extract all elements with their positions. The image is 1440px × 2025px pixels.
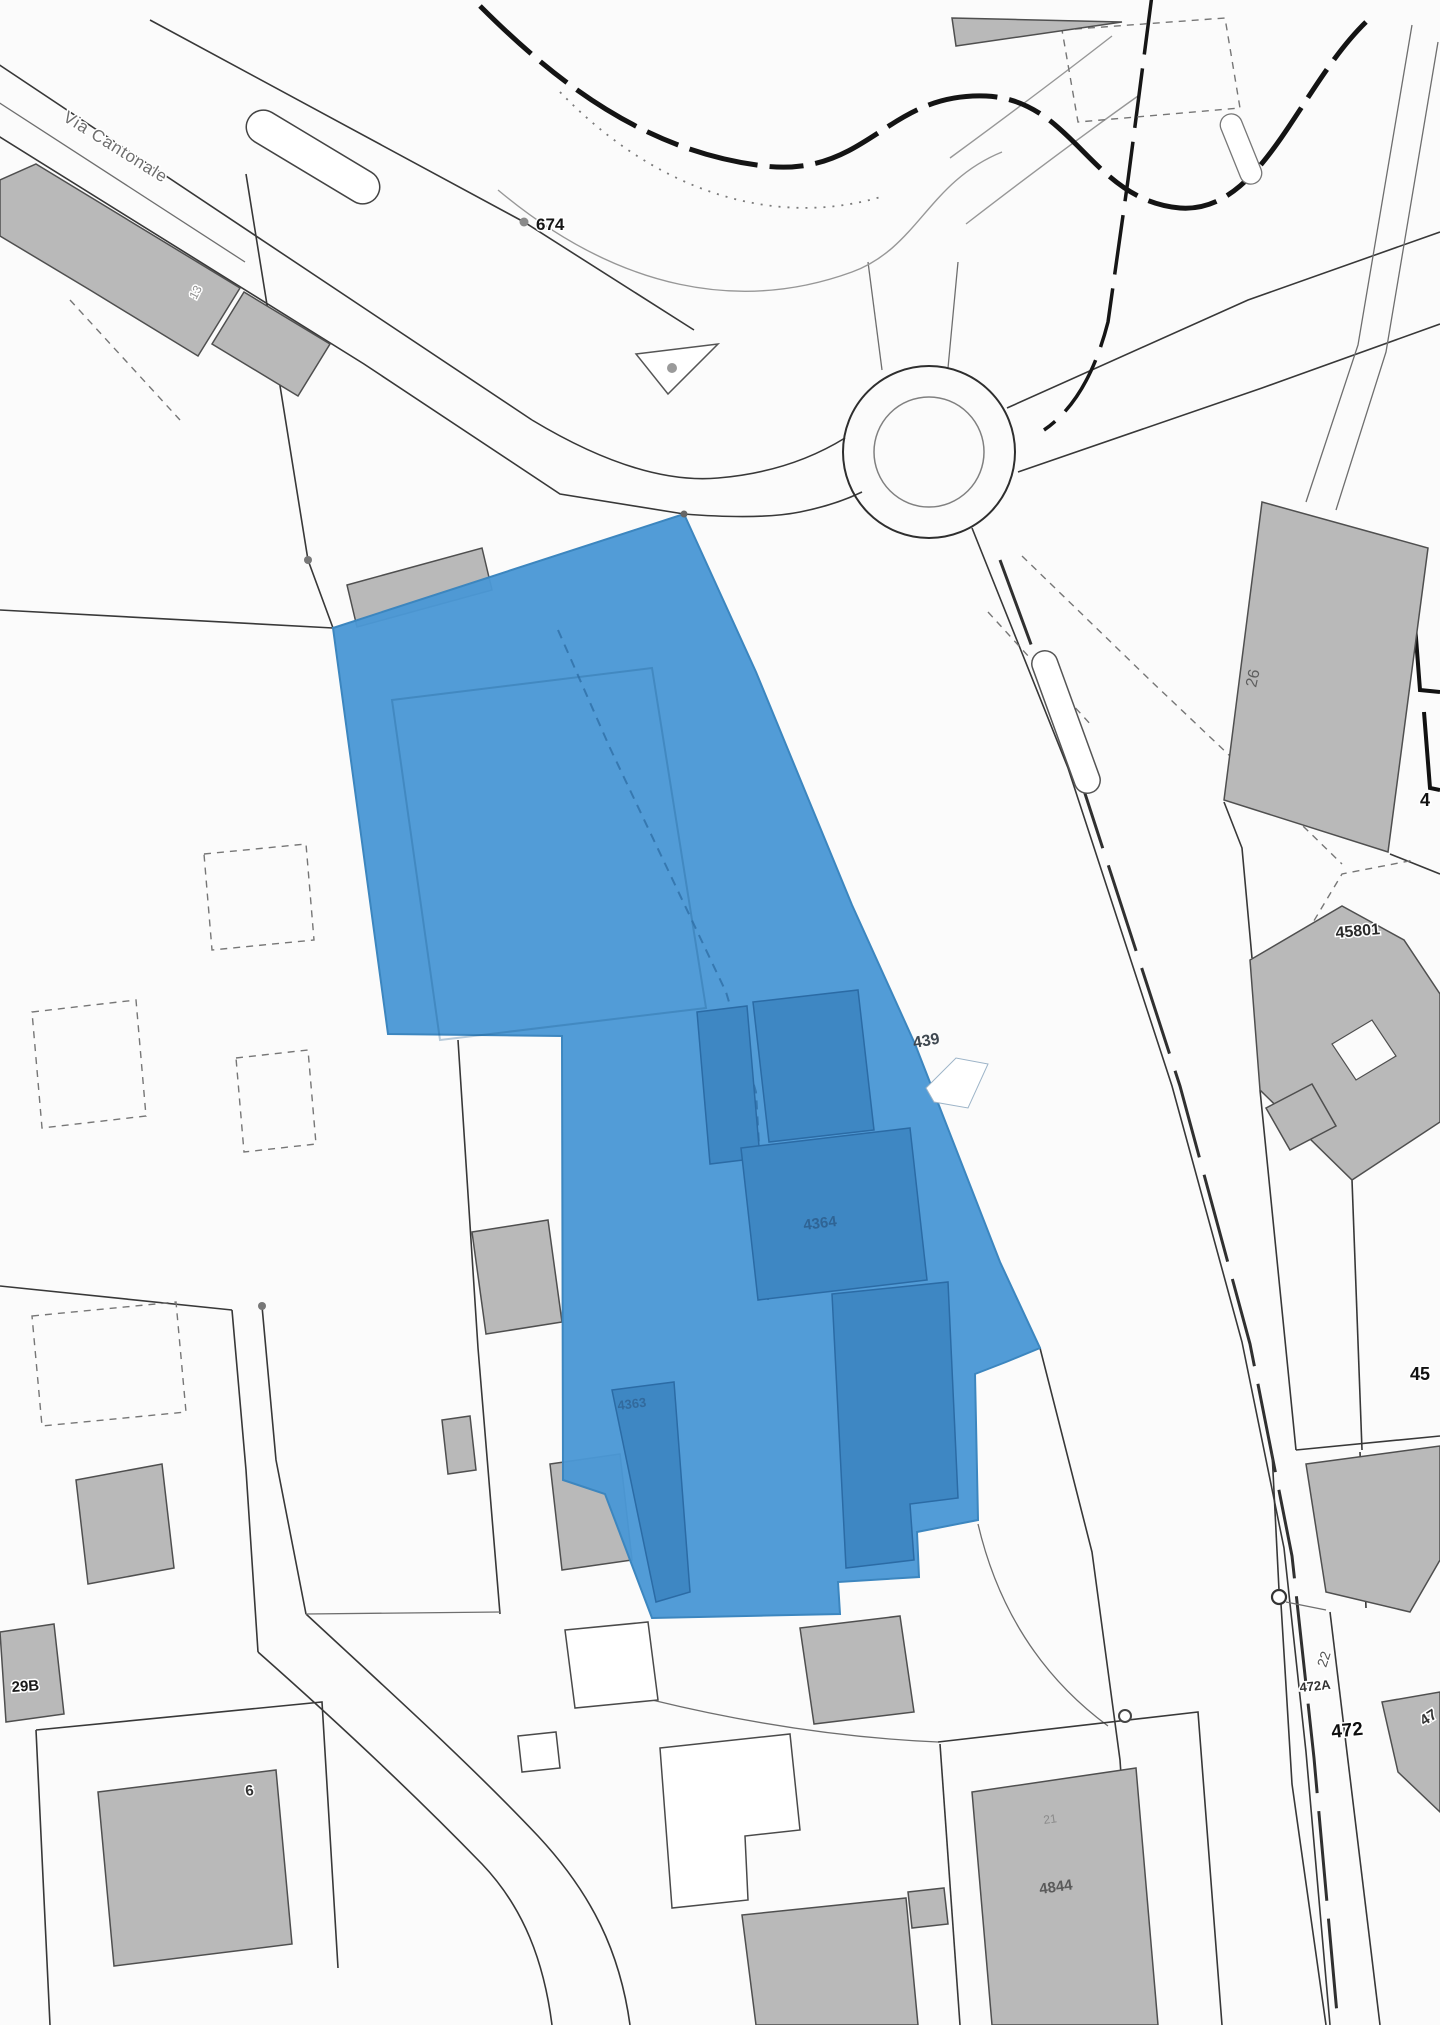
bold-corner-marks <box>1414 612 1440 790</box>
building-white-1 <box>565 1622 658 1708</box>
building-4844 <box>972 1768 1158 2025</box>
parcel-line-b4 <box>306 1612 500 1614</box>
roundabout-inner <box>874 397 984 507</box>
parcel-line-r3 <box>1224 802 1252 958</box>
parcel-line-r1 <box>1306 25 1412 502</box>
fork-island <box>636 344 718 394</box>
edge-label-4: 4 <box>1420 790 1430 810</box>
top-gray-curve <box>498 152 1002 291</box>
dashed-parcel-tr <box>1062 18 1240 122</box>
bold-boundary-north <box>1044 0 1152 430</box>
building-white-3 <box>518 1732 560 1772</box>
parcel-line-r12 <box>1286 1602 1326 1610</box>
building-bottom-right-1 <box>1306 1446 1440 1612</box>
inner-building-2 <box>753 990 874 1142</box>
parcel-line-r4 <box>1390 854 1440 874</box>
parcel-line-r10 <box>1330 1612 1380 2025</box>
house-label-21: 21 <box>1042 1811 1057 1827</box>
boundary-dot-1 <box>304 556 312 564</box>
building-left-lower <box>76 1464 174 1584</box>
cadastral-map: Via Cantonale 674 13 439 4364 4363 26 45… <box>0 0 1440 2025</box>
building-small-sq <box>908 1888 948 1928</box>
house-label-26: 26 <box>1243 668 1263 689</box>
parcel-line-l3 <box>0 1286 232 1310</box>
island-dot <box>667 363 677 373</box>
point-label-674: 674 <box>536 215 565 234</box>
parcel-line-l1 <box>0 610 333 628</box>
entrance-island-wedge <box>926 1058 988 1108</box>
boundary-dot-2 <box>258 1302 266 1310</box>
building-top-left-1 <box>0 164 240 356</box>
boundary-point-674 <box>520 218 529 227</box>
dashed-parcel-d <box>32 1302 186 1426</box>
parcel-label-472: 472 <box>1330 1719 1364 1743</box>
ne-road-edge-1 <box>1007 232 1440 408</box>
dashed-parcel-b <box>32 1000 146 1128</box>
dashed-parcel-a <box>204 844 314 950</box>
building-strip-3 <box>442 1416 476 1474</box>
road-to-roundabout-s-edge <box>684 492 862 517</box>
roundabout-outer <box>843 366 1015 538</box>
parcel-line-r6 <box>1352 1180 1362 1450</box>
ne-road-edge-2 <box>1018 324 1440 472</box>
ne-curve-2 <box>966 96 1138 224</box>
building-strip-1 <box>472 1220 562 1334</box>
highlight-parcel-group <box>333 514 1040 1618</box>
street-curve-2 <box>258 1652 552 2025</box>
building-top-sliver <box>952 18 1122 46</box>
building-bottom-center <box>742 1898 918 2025</box>
edge-label-45: 45 <box>1410 1364 1430 1384</box>
house-label-22: 22 <box>1314 1649 1334 1669</box>
building-white-2 <box>660 1734 800 1908</box>
parcel-line-r7 <box>1296 1436 1440 1450</box>
boundary-dot-apex <box>681 511 688 518</box>
street-label-via-cantonale: Via Cantonale <box>60 107 171 186</box>
road-to-roundabout-n-edge <box>532 420 845 479</box>
parcel-line-l2 <box>246 174 333 628</box>
map-canvas: Via Cantonale 674 13 439 4364 4363 26 45… <box>0 0 1440 2025</box>
n-exit-edge-2 <box>948 262 958 368</box>
parcel-label-472a: 472A <box>1299 1677 1332 1695</box>
n-exit-edge-1 <box>868 262 882 370</box>
serpentine-bold-boundary <box>480 6 1366 208</box>
median-island-3 <box>1217 111 1265 188</box>
median-island-1 <box>240 104 386 210</box>
street-edge-l1 <box>262 1306 306 1614</box>
median-island-2 <box>1028 647 1104 797</box>
survey-ring-1 <box>1272 1590 1286 1604</box>
parcel-line-b2 <box>940 1744 960 2025</box>
survey-ring-2 <box>1119 1710 1131 1722</box>
parcel-label-439: 439 <box>912 1031 941 1052</box>
parcel-label-29b: 29B <box>11 1677 40 1696</box>
parcel-line-r2 <box>1336 42 1438 510</box>
road-corner-curve <box>978 1524 1108 1726</box>
building-top-left-2 <box>212 292 330 396</box>
building-6 <box>98 1770 292 1966</box>
street-edge-l2 <box>232 1310 258 1652</box>
dashed-parcel-c <box>236 1050 316 1152</box>
building-below-parcel <box>800 1616 914 1724</box>
building-29b <box>0 1624 64 1722</box>
